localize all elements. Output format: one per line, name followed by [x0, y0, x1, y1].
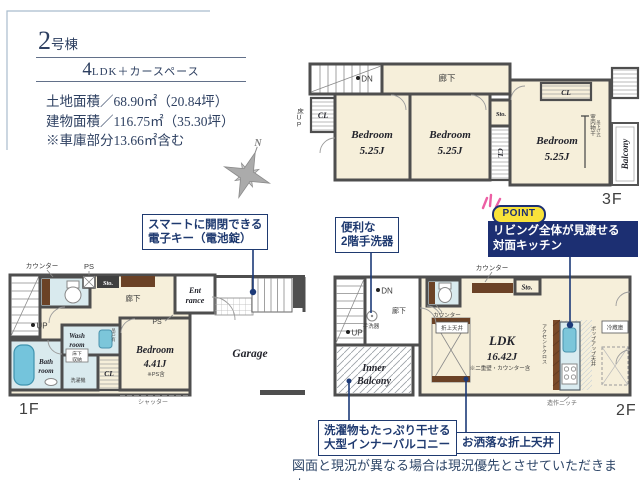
garage-label-1f: Garage	[232, 348, 267, 360]
entrance-label1-1f: Ent	[188, 286, 202, 295]
compass-north-label: N	[253, 138, 262, 149]
washer-label-1f: 洗濯機	[70, 377, 85, 384]
raised-ceiling-label-2f: 折上天井	[441, 324, 464, 332]
stairs-down-label-2f: DN	[381, 287, 393, 296]
indoor-drying-type-3f: 吊下げ式	[596, 120, 602, 138]
closet-top-label-3f: CL	[561, 88, 571, 97]
ldk-name-2f: LDK	[488, 333, 516, 348]
callout-inner-balcony: 洗濯物もたっぷり干せる 大型インナーバルコニー	[318, 420, 457, 456]
header-rule-top	[36, 57, 246, 58]
hallway-label-3f: 廊下	[438, 73, 456, 83]
bedroom2-size-3f: 5.25J	[438, 145, 463, 157]
bathroom-label2-1f: room	[38, 367, 54, 375]
bedroom-1f: Bedroom 4.41J ※PS含	[120, 318, 190, 390]
bedroom3-3f: CL Bedroom 5.25J 室内物干 吊下げ式	[510, 80, 610, 185]
handwash-label-2f: 手洗器	[363, 322, 380, 330]
callout-smart-key-line2: 電子キー（電池錠）	[148, 232, 262, 246]
floor-label-3f: 3F	[602, 191, 623, 208]
washroom-label1-1f: Wash	[69, 332, 85, 340]
inner-balcony-label2-2f: Balcony	[356, 376, 391, 387]
bedroom3-size-3f: 5.25J	[545, 151, 570, 163]
storage-label-2f: Sto.	[521, 284, 532, 292]
building-title: 2号棟	[38, 26, 78, 56]
callout-handwash-line2: 2階手洗器	[341, 235, 393, 249]
callout-ceiling: お洒落な折上天井	[456, 432, 560, 454]
accent-cloth-label-2f: アクセントクロス	[541, 324, 547, 364]
floor-up-label-3f: 床UP	[296, 107, 304, 129]
ldk-note-2f: ※二重壁・カウンター含	[470, 364, 531, 372]
niche-label-2f: 造作ニッチ	[547, 399, 577, 407]
header-rule-bottom	[36, 81, 246, 82]
floor-plan-1f: UP カウンター PS Sto. 廊下 Ent rance	[5, 262, 315, 422]
inner-balcony-2f: Inner Balcony	[335, 345, 413, 395]
bedroom2-3f: Bedroom 5.25J	[410, 94, 490, 180]
washroom-label2-1f: room	[69, 341, 85, 349]
area-info: 土地面積／68.90㎡（20.84坪） 建物面積／116.75㎡（35.30坪）…	[46, 92, 235, 151]
stairs-up-label-1f: UP	[36, 322, 47, 331]
building-number-suffix: 号棟	[51, 37, 78, 52]
callout-smart-key-line1: スマートに開閉できる	[148, 218, 262, 232]
underfloor-label2-1f: 収納	[72, 356, 82, 363]
counter-top-label-2f: カウンター	[476, 263, 509, 272]
floor-plan-2f: DN UP 手洗器 廊下 カウンター カウンター Sto.	[330, 262, 640, 422]
bathroom-1f: Bath room	[10, 340, 62, 390]
callout-ceiling-line1: お洒落な折上天井	[462, 436, 554, 450]
storage-1f: Sto.	[97, 276, 119, 288]
floor-label-2f: 2F	[616, 402, 637, 419]
bedroom-note-1f: ※PS含	[147, 370, 165, 378]
floor-plan-3f: DN 廊下 床UP CL Bedroom 5.25J Bedroom 5.25J…	[295, 56, 640, 211]
closet-left-label-3f: CL	[318, 111, 328, 120]
callout-open-kitchen-line1: リビング全体が見渡せる	[493, 224, 633, 239]
garage-area-note: ※車庫部分13.66㎡含む	[46, 131, 235, 151]
shoe-cabinet-1f	[121, 276, 155, 287]
ps-bedroom-label-1f: PS	[152, 319, 162, 326]
bedroom-size-1f: 4.41J	[143, 359, 168, 370]
point-badge: POINT	[492, 205, 546, 224]
closet-label-1f: CL	[104, 369, 114, 378]
plan-type: 4LDK＋カースペース	[36, 59, 246, 81]
callout-open-kitchen-line2: 対面キッチン	[493, 239, 633, 254]
balcony-label-3f: Balcony	[620, 138, 630, 171]
pipe-shaft-1f	[83, 276, 95, 288]
popup-ceiling-label-2f: ポップアップ天井	[590, 326, 596, 367]
closet-topright-3f	[612, 68, 638, 98]
bathroom-label1-1f: Bath	[38, 358, 53, 366]
bedroom2-name-3f: Bedroom	[428, 129, 471, 141]
storage-label-1f: Sto.	[103, 280, 114, 287]
floor-label-1f: 1F	[19, 401, 40, 418]
counter-top-2f	[472, 283, 513, 293]
hallway-label-1f: 廊下	[126, 293, 141, 303]
underfloor-label1-1f: 床下	[72, 350, 82, 357]
building-number: 2	[38, 26, 51, 55]
building-area: 建物面積／116.75㎡（35.30坪）	[46, 112, 235, 132]
hanging-cabinet-label-1f: 吊戸有	[111, 328, 117, 343]
callout-inner-balcony-line2: 大型インナーバルコニー	[324, 438, 451, 452]
land-area: 土地面積／68.90㎡（20.84坪）	[46, 92, 235, 112]
bedroom1-size-3f: 5.25J	[360, 145, 385, 157]
balcony-3f: Balcony	[612, 123, 638, 185]
callout-handwash-line1: 便利な	[341, 221, 393, 235]
entrance-1f: Ent rance	[175, 275, 253, 320]
stairs-down-label-3f: DN	[361, 75, 373, 84]
bedroom-name-1f: Bedroom	[135, 345, 174, 356]
shutter-label-1f: シャッター	[138, 398, 168, 406]
callout-handwash: 便利な 2階手洗器	[335, 217, 399, 253]
counter-label-1f: カウンター	[26, 262, 59, 270]
bedroom3-name-3f: Bedroom	[535, 135, 578, 147]
callout-inner-balcony-line1: 洗濯物もたっぷり干せる	[324, 424, 451, 438]
kitchen-2f	[560, 322, 580, 390]
accent-wall-2f	[553, 320, 560, 390]
ldk-size-2f: 16.42J	[487, 351, 518, 363]
stairs-up-label-2f: UP	[351, 329, 362, 338]
stairs-3f: DN	[310, 64, 382, 94]
ps-top-label-1f: PS	[84, 262, 94, 271]
callout-smart-key: スマートに開閉できる 電子キー（電池錠）	[142, 214, 268, 250]
inner-balcony-label1-2f: Inner	[361, 363, 385, 374]
refrigerator-label-2f: 冷蔵庫	[607, 324, 624, 332]
entrance-label2-1f: rance	[186, 296, 205, 305]
callout-open-kitchen: リビング全体が見渡せる 対面キッチン	[488, 221, 638, 257]
floor-plan-flyer: 2号棟 4LDK＋カースペース 土地面積／68.90㎡（20.84坪） 建物面積…	[0, 0, 640, 480]
disclaimer-text: 図面と現況が異なる場合は現況優先とさせていただきます。	[292, 455, 640, 480]
plan-type-number: 4	[82, 59, 92, 80]
storage-label-3f: Sto.	[496, 111, 507, 118]
bedroom1-3f: Bedroom 5.25J	[320, 94, 410, 180]
hallway-label-2f: 廊下	[392, 306, 406, 315]
plan-type-suffix: LDK＋カースペース	[92, 66, 200, 78]
closet-mid-label-3f: CL	[496, 148, 505, 158]
garage-steps-1f	[252, 278, 305, 312]
indoor-drying-label-3f: 室内物干	[589, 113, 596, 138]
garage-bottom-wall-1f	[260, 390, 305, 395]
bedroom1-name-3f: Bedroom	[350, 129, 393, 141]
